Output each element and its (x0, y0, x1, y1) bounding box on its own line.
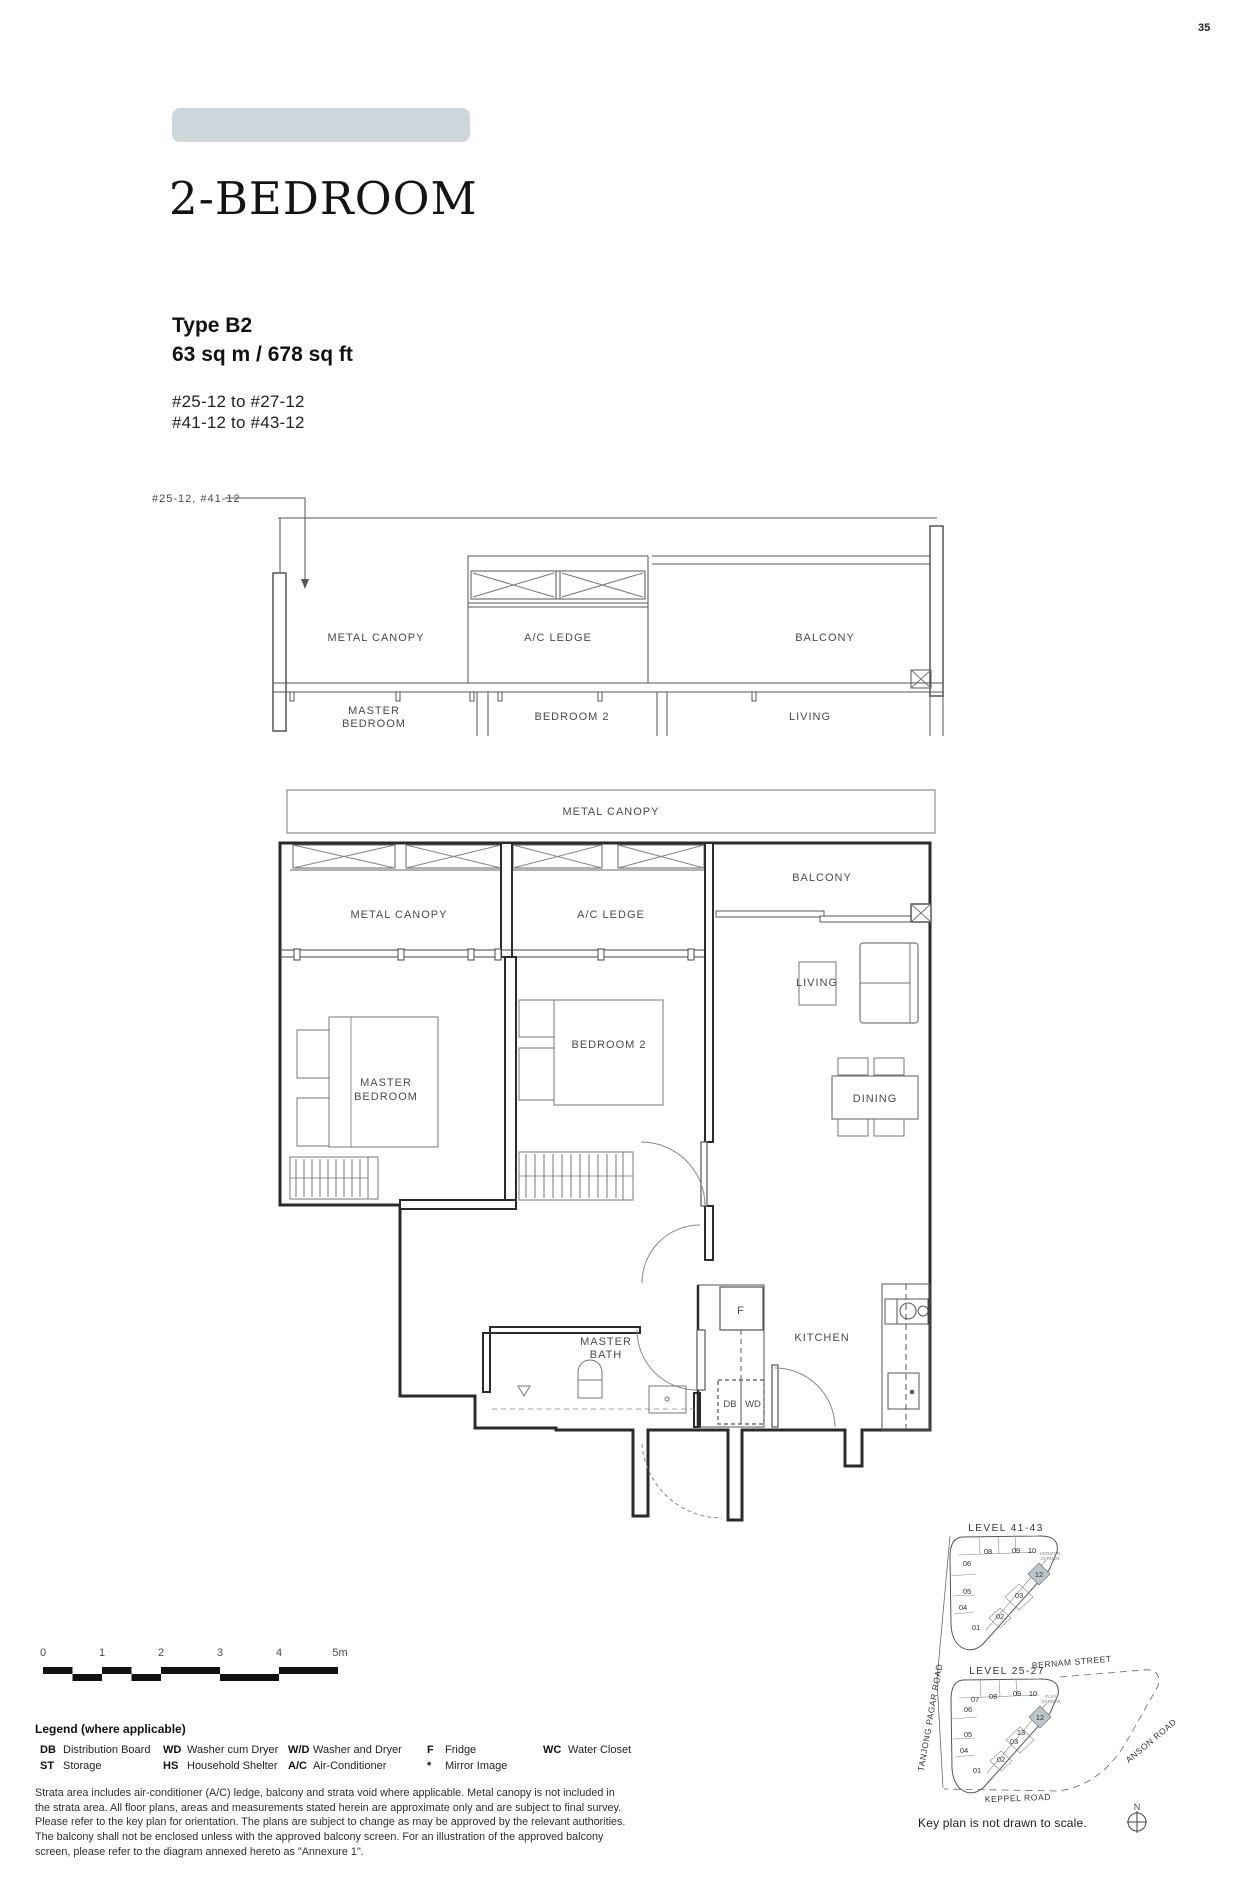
legend-abbr: A/C (288, 1760, 307, 1772)
scale-tick-1: 1 (99, 1647, 105, 1659)
scale-tick-5: 5m (332, 1647, 347, 1659)
interior-walls (400, 843, 713, 1427)
keyplan-upper-level-label: LEVEL 41-43 (968, 1523, 1044, 1534)
unit-number: 05 (964, 1730, 972, 1739)
lobby-door-arc (642, 1444, 722, 1518)
legend-abbr: HS (163, 1760, 178, 1772)
bedroom2-wardrobe (519, 1152, 633, 1200)
unit-number: 10 (1028, 1546, 1036, 1555)
plan-db-label: DB (723, 1399, 736, 1410)
legend-abbr: WD (163, 1744, 181, 1756)
legend-abbr: DB (40, 1744, 56, 1756)
street-keppel-label: KEPPEL ROAD (985, 1792, 1052, 1804)
legend-abbr: F (427, 1744, 434, 1756)
unit-range-1: #25-12 to #27-12 (172, 391, 305, 412)
plan-kitchen-label: KITCHEN (794, 1332, 849, 1344)
north-arrow-icon: N (1127, 1802, 1147, 1833)
section-metal-canopy-label: METAL CANOPY (328, 632, 425, 644)
plan-master-bath-label-1: MASTER (580, 1336, 632, 1348)
page-title: 2-BEDROOM (169, 172, 478, 225)
scale-tick-2: 2 (158, 1647, 164, 1659)
plan-metal-canopy-label: METAL CANOPY (351, 909, 448, 921)
unit-number: 12 (1036, 1713, 1044, 1722)
legend-label: Fridge (445, 1744, 476, 1756)
plan-balcony-label: BALCONY (792, 872, 852, 884)
bedroom2-door (641, 1142, 707, 1206)
plan-living-label: LIVING (796, 977, 838, 989)
street-anson-label: ANSON ROAD (1124, 1717, 1179, 1765)
scale-tick-0: 0 (40, 1647, 46, 1659)
legend-label: Mirror Image (445, 1760, 507, 1772)
kitchen-sink (888, 1373, 919, 1409)
canopy-truss-row (290, 845, 704, 870)
plan-master-bath-label-2: BATH (590, 1349, 623, 1361)
legend-label: Water Closet (568, 1744, 631, 1756)
legend-label: Household Shelter (187, 1760, 278, 1772)
legend-abbr: W/D (288, 1744, 309, 1756)
keyplan-lower-units: 07 08 09 10 06 12 05 13 03 04 02 01 PLAY… (960, 1689, 1061, 1775)
disclaimer-text: Strata area includes air-conditioner (A/… (35, 1786, 629, 1859)
unit-number: 02 (997, 1755, 1005, 1764)
garden-label: GARDEN (1040, 1556, 1059, 1561)
scale-tick-4: 4 (276, 1647, 282, 1659)
scale-bar: 0 1 2 3 4 5m (35, 1643, 365, 1688)
street-tanjong-pagar-label: TANJONG PAGAR ROAD (916, 1663, 945, 1772)
unit-number: 01 (973, 1766, 981, 1775)
street-bernam-label: BERNAM STREET (1031, 1654, 1112, 1671)
window-line (280, 949, 713, 960)
unit-number: 08 (984, 1547, 992, 1556)
section-ac-ledge-label: A/C LEDGE (524, 632, 592, 644)
cross-section-diagram: #25-12, #41-12 METAL CANOPY A/C LEDGE BA… (130, 486, 970, 736)
corridor-door-arc (642, 1225, 700, 1283)
legend-abbr: WC (543, 1744, 561, 1756)
unit-number: 01 (972, 1623, 980, 1632)
balcony-sliding-door (716, 904, 931, 922)
floor-trap-icon (518, 1386, 530, 1396)
floor-plan: METAL CANOPY METAL CANOPY A/C LEDGE BALC… (230, 780, 960, 1570)
section-callout-label: #25-12, #41-12 (152, 493, 241, 505)
unit-range-2: #41-12 to #43-12 (172, 412, 305, 433)
plan-metal-canopy-top-label: METAL CANOPY (563, 806, 660, 818)
scale-tick-3: 3 (217, 1647, 223, 1659)
master-wardrobe (290, 1157, 378, 1199)
plan-bedroom2-label: BEDROOM 2 (571, 1039, 646, 1051)
unit-number: 03 (1015, 1591, 1023, 1600)
unit-numbers: #25-12 to #27-12 #41-12 to #43-12 (172, 391, 305, 433)
garden-label: GARDEN (1041, 1699, 1060, 1704)
section-bedroom2-label: BEDROOM 2 (534, 711, 609, 723)
legend-label: Distribution Board (63, 1744, 150, 1756)
unit-number: 10 (1029, 1689, 1037, 1698)
header-banner (172, 108, 470, 142)
unit-number: 06 (963, 1559, 971, 1568)
legend-abbr: * (427, 1760, 431, 1772)
plan-dining-label: DINING (853, 1093, 898, 1105)
north-label: N (1134, 1802, 1141, 1812)
legend-label: Air-Conditioner (313, 1760, 386, 1772)
scale-bar-segments (43, 1667, 338, 1681)
unit-number: 12 (1035, 1570, 1043, 1579)
legend-label: Washer cum Dryer (187, 1744, 278, 1756)
key-plan: LEVEL 41-43 LEVEL 25-27 08 09 10 06 12 0… (900, 1500, 1241, 1878)
entry-door (772, 1365, 835, 1427)
unit-number: 02 (996, 1612, 1004, 1621)
plan-master-bedroom-label-1: MASTER (360, 1077, 412, 1089)
legend-title: Legend (where applicable) (35, 1722, 186, 1736)
legend-label: Washer and Dryer (313, 1744, 402, 1756)
unit-number: 13 (1017, 1728, 1025, 1737)
callout-arrow-icon (301, 579, 309, 589)
toilet (578, 1360, 602, 1380)
section-master-bedroom-label-1: MASTER (348, 705, 400, 717)
legend-abbr: ST (40, 1760, 54, 1772)
unit-number: 04 (959, 1603, 967, 1612)
unit-number: 04 (960, 1746, 968, 1755)
kitchen-counter (882, 1284, 930, 1430)
plan-ac-ledge-label: A/C LEDGE (577, 909, 645, 921)
bedroom2-bed (519, 1000, 663, 1105)
unit-area: 63 sq m / 678 sq ft (172, 343, 353, 367)
legend: Legend (where applicable) DB Distributio… (35, 1722, 675, 1782)
keyplan-note: Key plan is not drawn to scale. (918, 1816, 1087, 1830)
unit-number: 03 (1010, 1737, 1018, 1746)
unit-number: 08 (989, 1692, 997, 1701)
plan-wd-label: WD (745, 1399, 761, 1410)
section-balcony-label: BALCONY (795, 632, 855, 644)
unit-number: 07 (971, 1695, 979, 1704)
unit-number: 09 (1013, 1689, 1021, 1698)
section-master-bedroom-label-2: BEDROOM (342, 718, 406, 730)
unit-number: 06 (964, 1705, 972, 1714)
section-living-label: LIVING (789, 711, 831, 723)
unit-number: 05 (963, 1587, 971, 1596)
canopy-divider-wall (501, 843, 512, 957)
page-number: 35 (1198, 22, 1210, 34)
unit-number: 09 (1012, 1546, 1020, 1555)
unit-type: Type B2 (172, 314, 252, 338)
road-boundary-left (937, 1536, 950, 1788)
plan-fridge-label: F (737, 1305, 745, 1317)
legend-label: Storage (63, 1760, 102, 1772)
plan-master-bedroom-label-2: BEDROOM (354, 1091, 418, 1103)
